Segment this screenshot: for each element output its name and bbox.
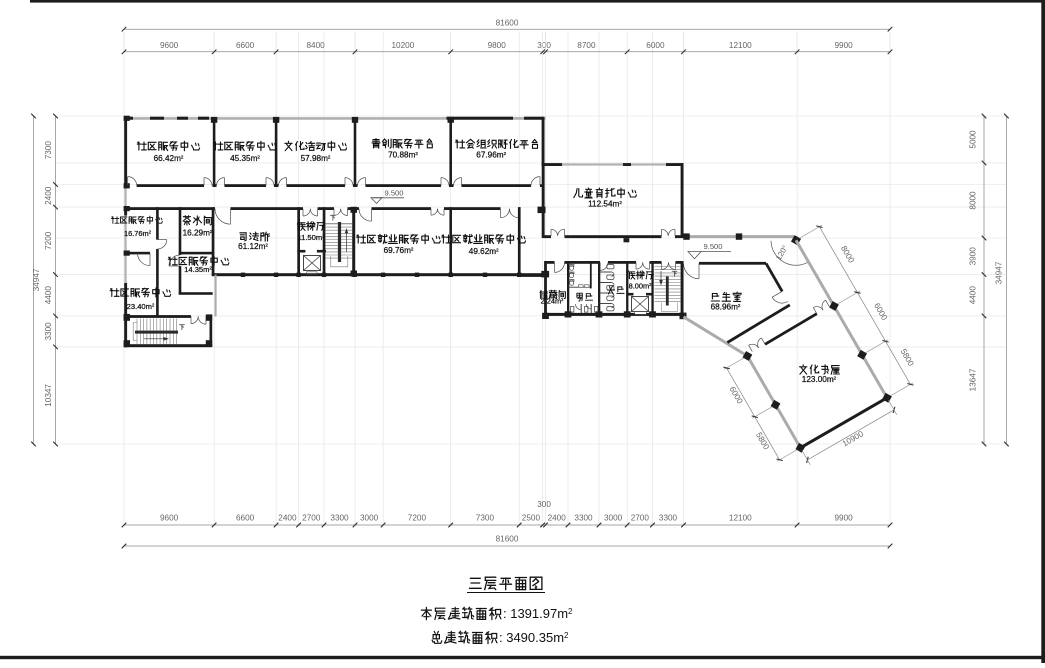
svg-text:8000: 8000 — [969, 191, 978, 210]
svg-text:2700: 2700 — [302, 514, 321, 523]
svg-text:14.35m2: 14.35m2 — [184, 265, 212, 274]
svg-text:57.98m2: 57.98m2 — [301, 154, 331, 163]
svg-text:9.500: 9.500 — [703, 242, 722, 251]
svg-text:3300: 3300 — [574, 514, 593, 523]
svg-text:3000: 3000 — [360, 514, 379, 523]
svg-text:6000: 6000 — [646, 41, 665, 50]
svg-text:5000: 5000 — [969, 130, 978, 149]
svg-text:3900: 3900 — [969, 247, 978, 266]
svg-text:2400: 2400 — [44, 186, 53, 205]
svg-text:123.00m2: 123.00m2 — [802, 375, 837, 384]
svg-text:10347: 10347 — [44, 384, 53, 407]
svg-text:2400: 2400 — [548, 514, 567, 523]
svg-text:70.88m2: 70.88m2 — [388, 151, 418, 160]
svg-text:9600: 9600 — [160, 41, 179, 50]
svg-text:7200: 7200 — [408, 514, 427, 523]
svg-text:16.76m2: 16.76m2 — [124, 229, 152, 238]
svg-text:69.76m2: 69.76m2 — [384, 246, 414, 255]
svg-text:6600: 6600 — [236, 514, 255, 523]
svg-text:49.62m2: 49.62m2 — [469, 247, 499, 256]
svg-text:7300: 7300 — [476, 514, 495, 523]
svg-text:61.12m2: 61.12m2 — [238, 242, 268, 251]
svg-text:7200: 7200 — [44, 231, 53, 250]
svg-text:34947: 34947 — [995, 261, 1004, 284]
svg-text:3000: 3000 — [604, 514, 623, 523]
svg-text:300: 300 — [537, 500, 551, 509]
svg-text:4400: 4400 — [969, 286, 978, 305]
svg-text:67.96m2: 67.96m2 — [476, 151, 506, 160]
svg-text:81600: 81600 — [496, 535, 519, 544]
svg-text:2400: 2400 — [278, 514, 297, 523]
svg-text:7300: 7300 — [44, 141, 53, 160]
svg-text:3300: 3300 — [659, 514, 678, 523]
svg-text:12100: 12100 — [729, 41, 752, 50]
svg-text:13647: 13647 — [969, 368, 978, 391]
svg-text:10200: 10200 — [392, 41, 415, 50]
svg-text:2.24m2: 2.24m2 — [541, 297, 565, 306]
svg-text:66.42m2: 66.42m2 — [154, 154, 184, 163]
svg-text:12100: 12100 — [729, 514, 752, 523]
svg-text:: 3490.35m2: : 3490.35m2 — [499, 630, 569, 645]
svg-text:68.96m2: 68.96m2 — [711, 303, 741, 312]
svg-text:16.29m2: 16.29m2 — [183, 229, 213, 238]
svg-text:: 1391.97m2: : 1391.97m2 — [503, 606, 573, 621]
svg-text:3300: 3300 — [44, 322, 53, 341]
svg-text:8400: 8400 — [306, 41, 325, 50]
svg-text:8700: 8700 — [577, 41, 596, 50]
svg-text:45.35m2: 45.35m2 — [230, 154, 260, 163]
svg-text:4400: 4400 — [44, 286, 53, 305]
svg-text:9900: 9900 — [834, 41, 853, 50]
svg-text:9800: 9800 — [488, 41, 507, 50]
svg-text:23.40m2: 23.40m2 — [127, 302, 155, 311]
svg-text:9900: 9900 — [834, 514, 853, 523]
svg-text:112.54m2: 112.54m2 — [588, 200, 622, 209]
svg-text:9600: 9600 — [160, 514, 179, 523]
svg-text:34947: 34947 — [32, 268, 41, 291]
svg-text:2500: 2500 — [522, 514, 541, 523]
svg-text:81600: 81600 — [496, 19, 519, 28]
svg-text:8.00m2: 8.00m2 — [629, 282, 653, 291]
svg-text:11.50m2: 11.50m2 — [297, 233, 325, 242]
svg-text:6600: 6600 — [236, 41, 255, 50]
svg-text:9.500: 9.500 — [384, 189, 403, 198]
svg-text:3300: 3300 — [330, 514, 349, 523]
svg-text:2700: 2700 — [631, 514, 650, 523]
svg-text:300: 300 — [537, 41, 551, 50]
